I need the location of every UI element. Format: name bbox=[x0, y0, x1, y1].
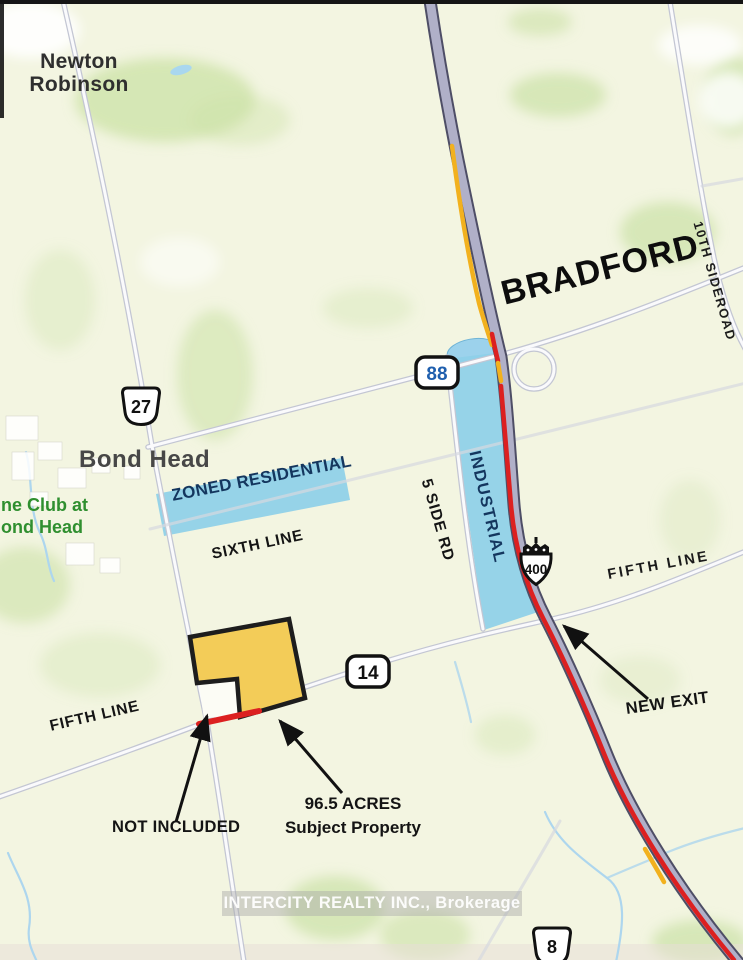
place-label-newton-robinson: Newton Robinson bbox=[23, 50, 135, 96]
highway-shield-14: 14 bbox=[347, 656, 389, 687]
svg-text:14: 14 bbox=[357, 663, 379, 684]
highway-shield-27: 27 bbox=[123, 388, 160, 425]
svg-text:27: 27 bbox=[131, 397, 151, 417]
annotation-subject-property: 96.5 ACRES Subject Property bbox=[265, 792, 441, 840]
place-label-club-at-bond-head: ne Club at ond Head bbox=[1, 495, 88, 538]
scan-bottom-tint bbox=[0, 944, 743, 960]
subject-property-arrow bbox=[280, 721, 342, 793]
club-label-line1: ne Club at bbox=[1, 495, 88, 517]
highway-shield-8: 8 bbox=[534, 928, 571, 960]
svg-text:8: 8 bbox=[547, 937, 557, 957]
construction-yellow-stripe-2 bbox=[498, 363, 501, 381]
annotation-subject-line: Subject Property bbox=[265, 816, 441, 840]
highway-shield-88: 88 bbox=[416, 357, 458, 388]
svg-text:88: 88 bbox=[426, 364, 447, 385]
parcel-notch-not-included bbox=[199, 681, 238, 719]
scan-border-top bbox=[0, 0, 743, 4]
place-label-bond-head: Bond Head bbox=[79, 447, 210, 473]
annotation-acreage: 96.5 ACRES bbox=[265, 792, 441, 816]
place-label-newton-line2: Robinson bbox=[23, 73, 135, 96]
annotation-not-included: NOT INCLUDED bbox=[112, 818, 240, 836]
svg-text:400: 400 bbox=[525, 562, 548, 577]
brokerage-watermark: INTERCITY REALTY INC., Brokerage bbox=[222, 891, 522, 916]
scan-border-left bbox=[0, 0, 4, 118]
club-label-line2: ond Head bbox=[1, 517, 88, 539]
property-map: 27 88 400 14 8 Newton Robinson bbox=[0, 0, 743, 960]
place-label-newton-line1: Newton bbox=[23, 50, 135, 73]
